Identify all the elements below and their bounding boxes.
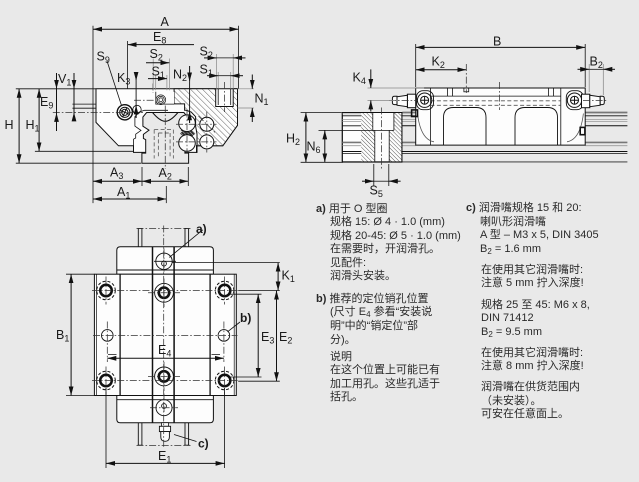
svg-text:A: A — [161, 15, 170, 29]
svg-text:K2: K2 — [432, 55, 445, 71]
svg-text:E1: E1 — [158, 449, 171, 465]
svg-text:B2: B2 — [590, 55, 603, 71]
svg-text:V1: V1 — [58, 72, 71, 88]
svg-text:A1: A1 — [117, 185, 130, 201]
svg-text:K3: K3 — [117, 71, 130, 87]
svg-text:S9: S9 — [97, 50, 110, 66]
svg-text:E2: E2 — [279, 330, 292, 346]
svg-text:N2: N2 — [173, 68, 187, 84]
svg-text:N6: N6 — [307, 140, 321, 156]
svg-text:S1: S1 — [152, 65, 165, 81]
svg-text:S2: S2 — [150, 47, 163, 63]
svg-text:c): c) — [198, 437, 209, 451]
svg-text:E9: E9 — [40, 95, 53, 111]
svg-text:A2: A2 — [159, 166, 172, 182]
svg-text:E8: E8 — [153, 30, 166, 46]
svg-text:H2: H2 — [286, 132, 300, 148]
svg-text:K4: K4 — [353, 71, 366, 87]
svg-text:H1: H1 — [26, 118, 40, 134]
svg-text:a): a) — [196, 222, 207, 236]
svg-text:S5: S5 — [370, 184, 383, 200]
svg-text:H: H — [5, 118, 14, 132]
svg-text:S2: S2 — [200, 45, 213, 61]
svg-text:b): b) — [240, 311, 251, 325]
svg-text:B: B — [493, 35, 501, 49]
svg-text:S1: S1 — [200, 63, 213, 79]
svg-text:B1: B1 — [56, 328, 69, 344]
svg-text:N1: N1 — [255, 92, 269, 108]
svg-text:E3: E3 — [261, 330, 274, 346]
svg-text:K1: K1 — [282, 269, 295, 285]
svg-text:A3: A3 — [110, 166, 123, 182]
